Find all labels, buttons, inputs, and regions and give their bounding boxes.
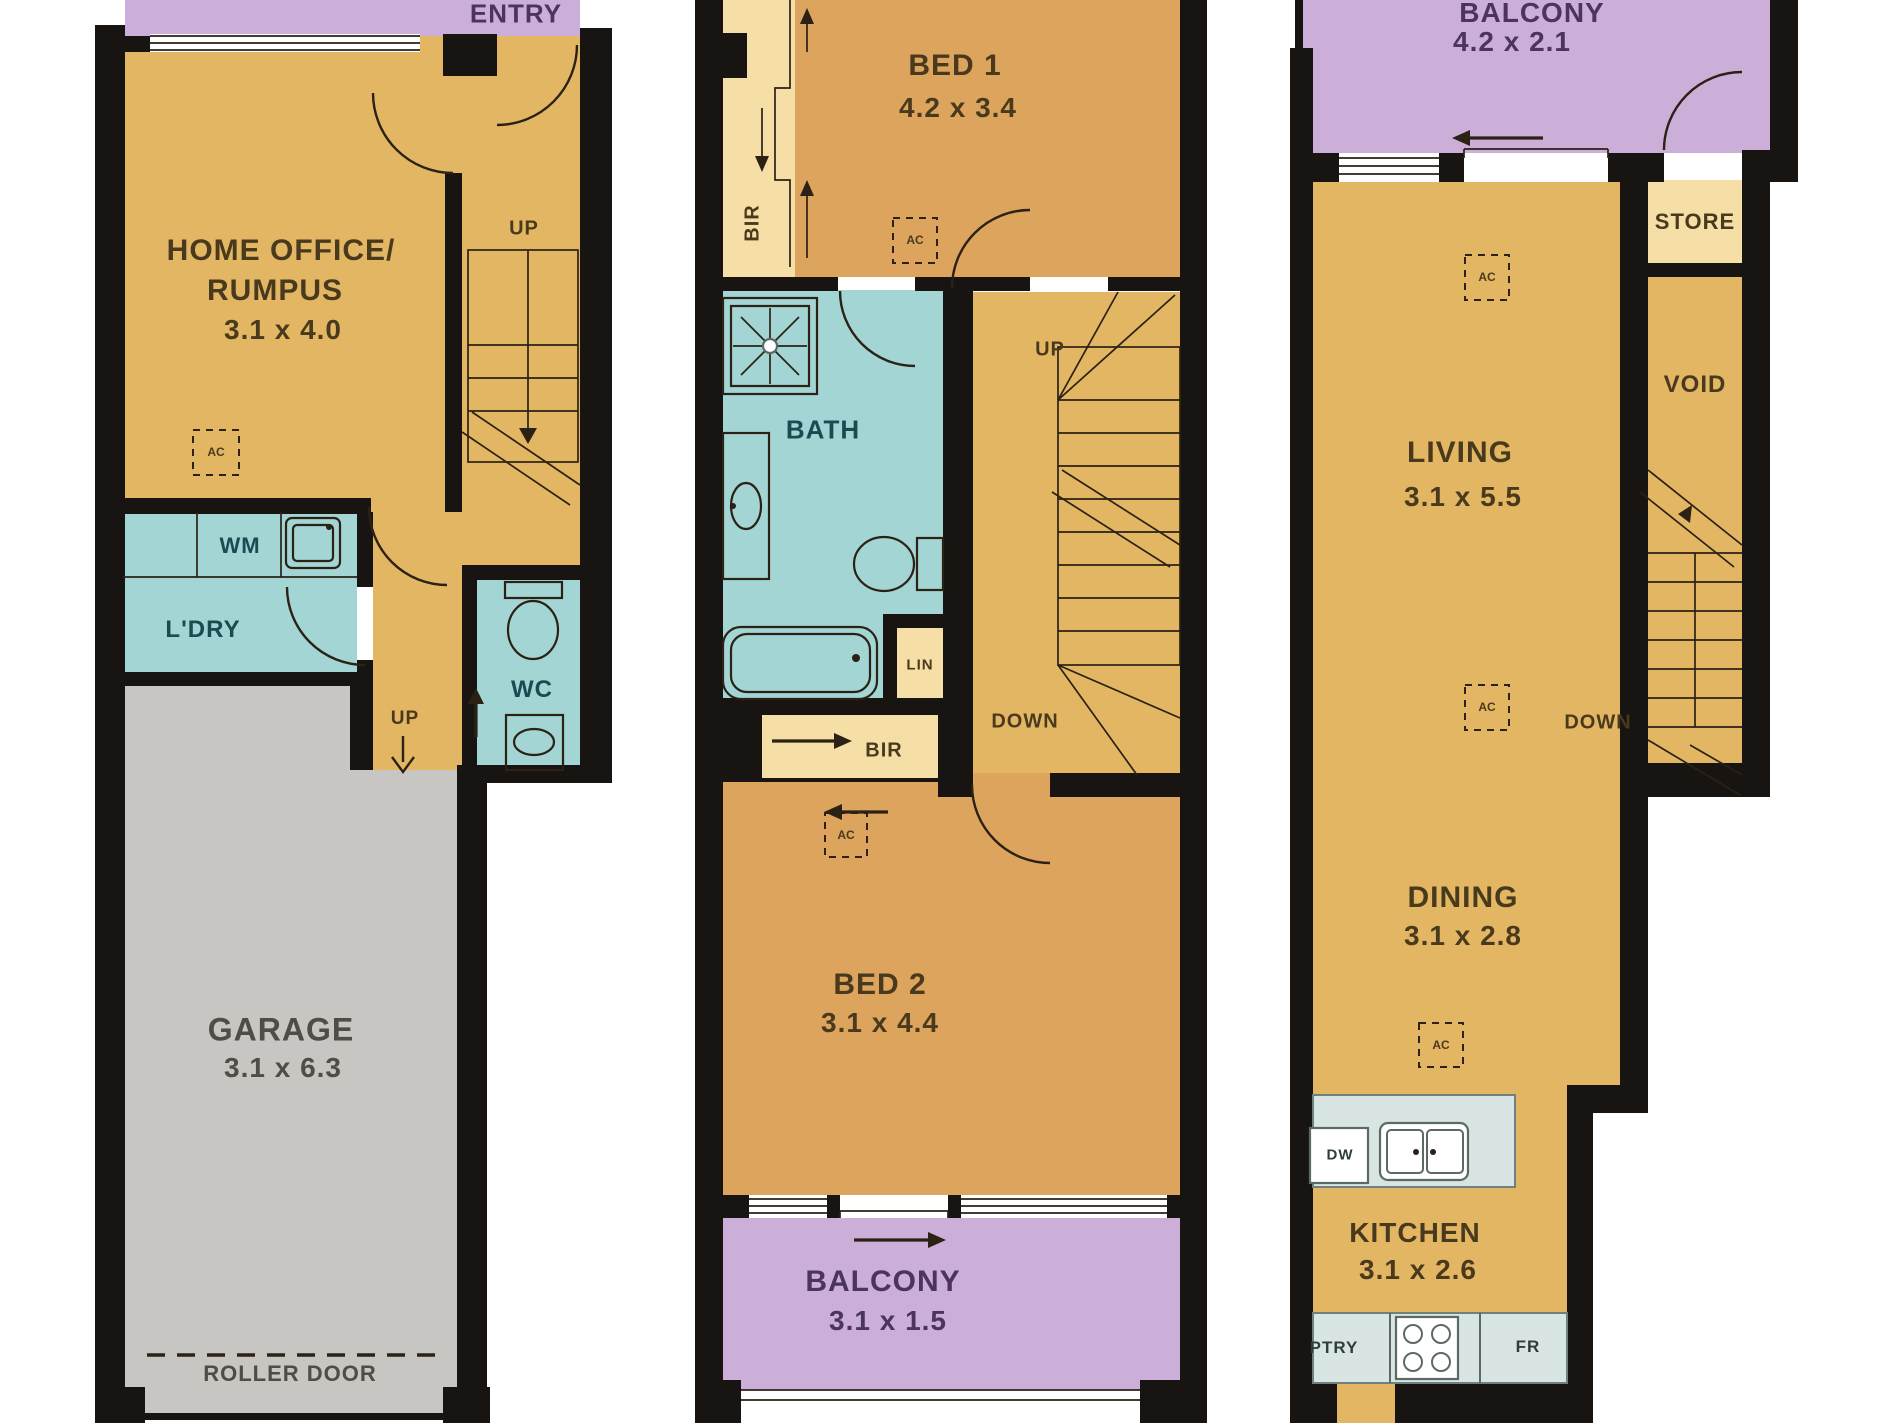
ground-walkway <box>373 512 462 772</box>
kitchen-island <box>1310 1095 1515 1187</box>
bed2-bir <box>762 715 938 778</box>
bed1-bir-label: BIR <box>742 204 765 241</box>
lin-label: LIN <box>906 657 933 674</box>
dishwasher-label: DW <box>1327 1147 1354 1164</box>
ac-label: AC <box>906 233 923 247</box>
ac-label: AC <box>207 445 224 459</box>
bed2-dim: 3.1 x 4.4 <box>821 1007 939 1039</box>
living-label: LIVING <box>1407 436 1513 470</box>
kitchen-label: KITCHEN <box>1349 1217 1480 1249</box>
ground-floor-plan <box>95 0 612 1423</box>
room-bed1 <box>795 0 1180 277</box>
stairs-up-label: UP <box>509 218 539 241</box>
entry-label: ENTRY <box>470 0 562 30</box>
room-living-dining <box>1313 182 1620 1097</box>
balcony2-label: BALCONY <box>1459 0 1604 29</box>
ac-label: AC <box>1478 270 1495 284</box>
stairs-up-label: UP <box>1035 339 1065 362</box>
ac-label: AC <box>1478 700 1495 714</box>
void-label: VOID <box>1664 371 1727 399</box>
room-garage <box>123 686 457 1413</box>
garage-label: GARAGE <box>208 1012 354 1049</box>
stairs-down-label: DOWN <box>1564 712 1631 735</box>
garage-up-label: UP <box>391 708 419 730</box>
dining-dim: 3.1 x 2.8 <box>1404 920 1522 952</box>
wc-label: WC <box>511 676 553 704</box>
roller-door-label: ROLLER DOOR <box>203 1361 377 1387</box>
bed2-label: BED 2 <box>833 968 926 1002</box>
balcony1-label: BALCONY <box>805 1265 960 1299</box>
home-office-dim: 3.1 x 4.0 <box>224 314 342 346</box>
floor-plan: ENTRY UP HOME OFFICE/ RUMPUS 3.1 x 4.0 A… <box>0 0 1900 1425</box>
fridge-label: FR <box>1516 1337 1541 1357</box>
room-balcony1 <box>723 1218 1180 1390</box>
dining-label: DINING <box>1408 881 1519 915</box>
first-floor-plan <box>695 0 1207 1423</box>
bed1-dim: 4.2 x 3.4 <box>899 92 1017 124</box>
wm-label: WM <box>219 533 260 559</box>
laundry-label: L'DRY <box>165 616 240 644</box>
pantry-label: PTRY <box>1310 1338 1359 1358</box>
living-dim: 3.1 x 5.5 <box>1404 481 1522 513</box>
store-label: STORE <box>1655 209 1735 235</box>
balcony1-dim: 3.1 x 1.5 <box>829 1305 947 1337</box>
home-office-label: HOME OFFICE/ <box>167 234 396 268</box>
kitchen-dim: 3.1 x 2.6 <box>1359 1254 1477 1286</box>
bed1-label: BED 1 <box>908 49 1001 83</box>
bath-label: BATH <box>786 415 860 446</box>
garage-dim: 3.1 x 6.3 <box>224 1052 342 1084</box>
cooktop-symbol <box>1396 1317 1458 1379</box>
kitchen-sink <box>1380 1123 1468 1180</box>
home-office-label2: RUMPUS <box>207 274 343 308</box>
bed2-bir-label: BIR <box>865 740 902 763</box>
balcony2-dim: 4.2 x 2.1 <box>1453 26 1571 58</box>
ac-label: AC <box>1432 1038 1449 1052</box>
ac-label: AC <box>837 828 854 842</box>
stairs-down-label: DOWN <box>991 711 1058 734</box>
